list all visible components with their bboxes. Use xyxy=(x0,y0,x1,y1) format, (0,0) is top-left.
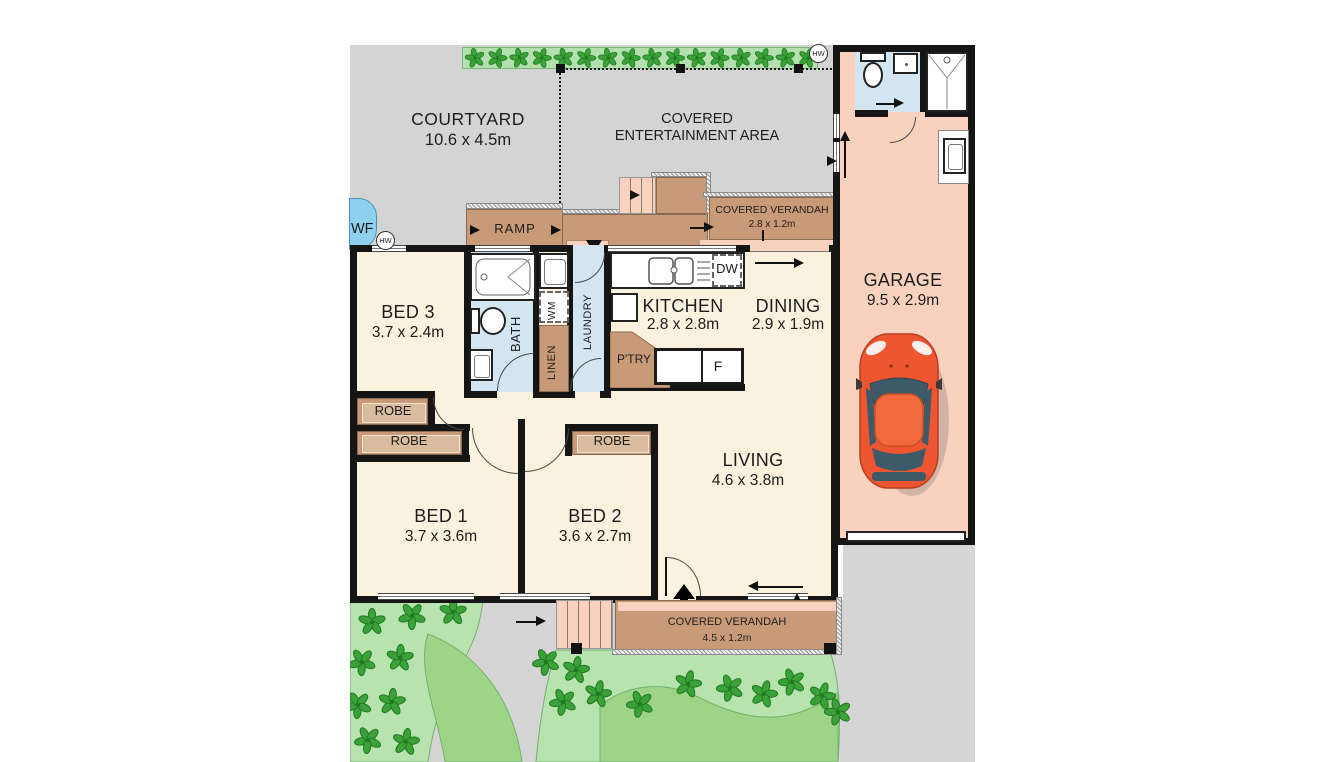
sliding-arrow-line xyxy=(757,586,803,588)
sliding-arrow xyxy=(748,581,758,591)
bath-sink xyxy=(469,349,493,381)
room-label-dining: DINING xyxy=(756,296,821,317)
plant-icon xyxy=(618,48,643,68)
room-label-entertainment-2: ENTERTAINMENT AREA xyxy=(615,128,779,145)
stairs-bottom xyxy=(556,600,613,649)
wall-segment xyxy=(651,424,658,600)
ramp-arrow xyxy=(551,225,561,235)
verandah-edge xyxy=(612,649,842,655)
sliding-door-opening xyxy=(750,241,829,252)
bathroom-sink xyxy=(893,53,918,74)
post xyxy=(794,64,803,73)
wall-segment xyxy=(600,391,611,398)
room-label-garage: GARAGE xyxy=(864,270,943,291)
room-dims-bed2: 3.6 x 2.7m xyxy=(559,528,631,546)
post xyxy=(824,643,836,654)
bath-label: BATH xyxy=(508,290,523,352)
pantry-label: P'TRY xyxy=(617,353,651,367)
hw-label: HW xyxy=(379,236,392,245)
room-dims-bed1: 3.7 x 3.6m xyxy=(405,528,477,546)
sliding-arrow-line xyxy=(755,262,797,264)
garage-entry-arrow xyxy=(827,156,837,166)
window xyxy=(608,245,736,252)
stair-direction-arrow xyxy=(536,616,546,626)
plant-icon xyxy=(485,48,510,68)
plant-icon xyxy=(707,48,732,68)
wall-segment xyxy=(464,391,497,398)
stair-arrow-line xyxy=(516,621,538,623)
car-top-view xyxy=(856,330,950,500)
wm-label: WM xyxy=(547,294,558,320)
wall-segment xyxy=(565,424,658,431)
room-dims-dining: 2.9 x 1.9m xyxy=(752,316,824,334)
ramp-arrow xyxy=(470,225,480,235)
cooktop xyxy=(611,293,638,322)
room-dims-garage: 9.5 x 2.9m xyxy=(867,292,939,310)
stair-direction-arrow xyxy=(630,190,640,200)
plant-icon xyxy=(729,48,753,68)
room-dims-bed3: 3.7 x 2.4m xyxy=(372,324,444,342)
fridge xyxy=(654,348,744,385)
laundry-label: LAUNDRY xyxy=(582,288,594,350)
wall-segment xyxy=(518,419,525,600)
garage-tub xyxy=(943,138,966,174)
shower xyxy=(926,52,968,112)
plant-icon xyxy=(596,48,620,68)
room-label-bed1: BED 1 xyxy=(414,506,468,527)
hot-water-unit: HW xyxy=(376,231,395,250)
plant-icon xyxy=(685,48,709,68)
hw-label: HW xyxy=(812,49,825,58)
plant-icon xyxy=(573,48,598,68)
toilet-bowl xyxy=(863,62,883,88)
tub-basin xyxy=(948,144,963,170)
plant-icon xyxy=(529,48,554,68)
deck-edge xyxy=(651,172,711,177)
garage-entry-arrow-stem xyxy=(844,140,846,178)
tub-basin xyxy=(544,259,566,285)
room-dims-living: 4.6 x 3.8m xyxy=(712,472,784,490)
room-dims-courtyard: 10.6 x 4.5m xyxy=(425,131,511,150)
fridge-label: F xyxy=(714,358,723,374)
door-arrow xyxy=(894,98,904,108)
plant-icon xyxy=(751,48,776,68)
main-entry-arrow xyxy=(673,584,695,599)
laundry-tub xyxy=(539,253,569,289)
verandah-edge xyxy=(836,597,842,655)
window xyxy=(475,245,530,252)
toilet-tank xyxy=(470,308,480,334)
fridge-divider xyxy=(701,351,703,382)
garage-door xyxy=(846,531,966,542)
wall-segment xyxy=(855,110,888,117)
robe-label: ROBE xyxy=(594,434,631,449)
sliding-arrow xyxy=(794,258,804,268)
room-label-entertainment-1: COVERED xyxy=(661,111,733,128)
room-label-living: LIVING xyxy=(723,450,784,471)
wall-segment xyxy=(350,455,470,462)
hot-water-unit: HW xyxy=(809,44,828,63)
room-label-bed3: BED 3 xyxy=(381,302,435,323)
window xyxy=(378,593,474,600)
sink-basin xyxy=(474,355,490,378)
water-feature-label: WF xyxy=(351,221,374,237)
linen-label: LINEN xyxy=(546,338,558,380)
verandah-top-label: COVERED VERANDAH xyxy=(715,204,828,216)
room-label-kitchen: KITCHEN xyxy=(642,296,723,317)
post xyxy=(556,64,565,73)
wall-segment xyxy=(533,391,575,398)
kitchen-sink xyxy=(648,256,712,286)
deck-upper xyxy=(656,177,708,214)
plant-icon xyxy=(507,48,531,68)
ramp-label: RAMP xyxy=(494,222,536,237)
laundry-door-opening xyxy=(573,245,604,252)
robe-label: ROBE xyxy=(375,404,412,419)
room-label-courtyard: COURTYARD xyxy=(411,109,525,129)
post xyxy=(676,64,685,73)
deck-edge xyxy=(562,209,620,214)
hedge-plant-icons xyxy=(463,48,817,68)
plant-icon xyxy=(463,48,487,68)
plant-icon xyxy=(641,48,665,68)
room-dims-kitchen: 2.8 x 2.8m xyxy=(647,316,719,334)
floor-plan: WF HW HW RAMP COVERED VERANDAH 2.8 x 1.2… xyxy=(0,0,1330,762)
sink-drain xyxy=(905,63,908,66)
wall-segment xyxy=(350,391,434,398)
toilet-tank xyxy=(860,52,886,62)
door-opening xyxy=(833,114,840,138)
driveway-paving xyxy=(843,545,975,762)
dishwasher-label: DW xyxy=(716,262,738,277)
verandah-top-dims: 2.8 x 1.2m xyxy=(749,219,796,231)
bathtub xyxy=(470,253,536,301)
hedge xyxy=(462,47,818,69)
room-label-bed2: BED 2 xyxy=(568,506,622,527)
window xyxy=(500,593,590,600)
post xyxy=(571,643,582,654)
entertainment-boundary-v xyxy=(559,68,561,203)
door-arrow-line xyxy=(876,103,896,105)
verandah-bottom-dims: 4.5 x 1.2m xyxy=(702,632,751,644)
toilet-bowl xyxy=(480,307,506,335)
entry-arrow xyxy=(704,222,714,232)
robe-label: ROBE xyxy=(391,434,428,449)
verandah-bottom-label: COVERED VERANDAH xyxy=(668,616,787,629)
verandah-step xyxy=(618,602,836,611)
